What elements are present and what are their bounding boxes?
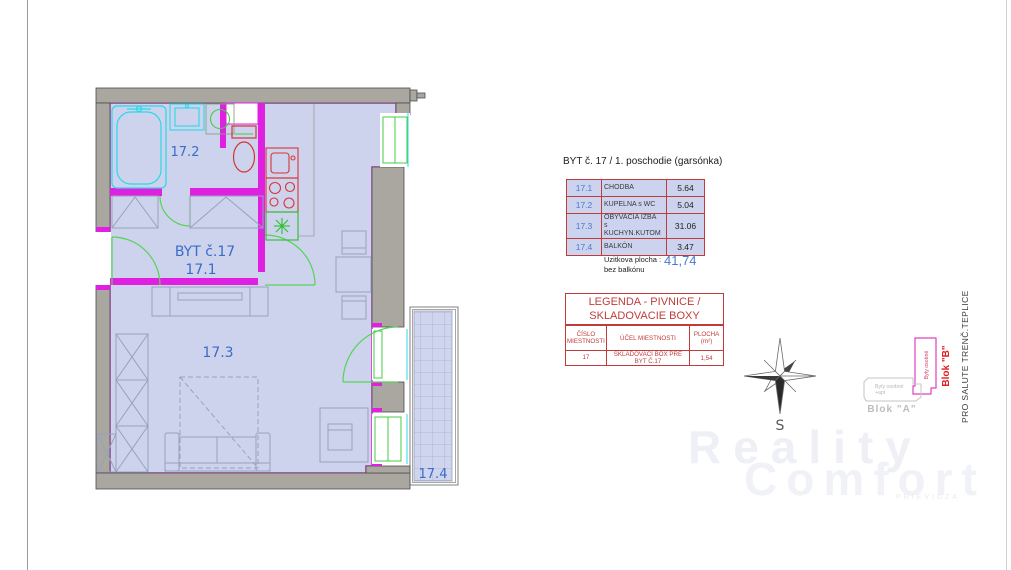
room-name: CHODBA [602, 180, 667, 197]
room-area: 5.04 [667, 197, 705, 214]
legend-header-number: ČÍSLO MIESTNOSTI [566, 326, 607, 351]
legend-title-line1: LEGENDA - PIVNICE / [566, 295, 723, 309]
usable-area-total: 41,74 [664, 253, 697, 268]
room-name-line2: s KUCHYN.KUTOM [604, 222, 664, 238]
blok-b-outline: Byty osobné Blok "B" [913, 338, 952, 394]
table-row: 17.1 CHODBA 5.64 [567, 180, 705, 197]
compass-rose: S [738, 330, 822, 434]
legend-header-purpose: ÚČEL MIESTNOSTI [606, 326, 689, 351]
blok-a-label: Blok "A" [867, 404, 916, 415]
legend-title-line2: SKLADOVACIE BOXY [566, 309, 723, 323]
room-number: 17.4 [567, 239, 602, 256]
sheet-fold-line [27, 0, 28, 570]
usable-area-label: Uzitkova plocha : bez balkónu [604, 255, 666, 275]
usable-area-label-line1: Uzitkova plocha : [604, 255, 666, 265]
blok-a-outline: Byty osobné +apt Blok "A" [864, 378, 921, 415]
legend-room-area: 1,54 [690, 351, 724, 366]
legend-header-row: ČÍSLO MIESTNOSTI ÚČEL MIESTNOSTI PLOCHA … [566, 326, 724, 351]
area-table: 17.1 CHODBA 5.64 17.2 KUPELNA s WC 5.04 … [566, 179, 705, 256]
watermark-line3: PRIEVIDZA [896, 494, 960, 501]
legend-header-number-line1: ČÍSLO [567, 331, 605, 338]
table-row: 17.3 OBYVACIA IZBA s KUCHYN.KUTOM 31.06 [567, 214, 705, 239]
area-table-title: BYT č. 17 / 1. poschodie (garsónka) [563, 156, 722, 167]
project-side-text: PRO SALUTE TRENČ.TEPLICE [960, 268, 974, 423]
apartment-label: BYT č.17 [175, 244, 235, 260]
floor-plan: 17.2 BYT č.17 17.1 17.3 17.4 [88, 80, 466, 498]
wc-niche [226, 103, 258, 124]
site-blocks: Byty osobné Blok "B" Byty osobné +apt Bl… [855, 328, 965, 420]
blok-b-label: Blok "B" [941, 345, 952, 386]
room-name: KUPELNA s WC [602, 197, 667, 214]
blok-b-desc: Byty osobné [924, 351, 930, 380]
legend-room-number: 17 [566, 351, 607, 366]
room-name: OBYVACIA IZBA s KUCHYN.KUTOM [602, 214, 667, 239]
legend-room-purpose: SKLADOVACÍ BOX PRE BYT Č.17 [606, 351, 689, 366]
room-label-17-1: 17.1 [185, 262, 216, 278]
legend-header-number-line2: MIESTNOSTI [567, 338, 605, 345]
room-name-line1: OBYVACIA IZBA [604, 214, 664, 222]
window-bottom [372, 414, 407, 464]
page: Reality Comfort PRIEVIDZA [0, 0, 1011, 570]
table-row: 17.2 KUPELNA s WC 5.04 [567, 197, 705, 214]
room-name: BALKÓN [602, 239, 667, 256]
legend-header-area: PLOCHA (m²) [690, 326, 724, 351]
room-label-17-4: 17.4 [419, 467, 448, 482]
room-number: 17.3 [567, 214, 602, 239]
balcony-door-opening [372, 329, 407, 380]
room-area: 31.06 [667, 214, 705, 239]
room-area: 5.64 [667, 180, 705, 197]
legend-title: LEGENDA - PIVNICE / SKLADOVACIE BOXY [565, 293, 724, 325]
compass-south-needle [775, 376, 784, 414]
room-number: 17.2 [567, 197, 602, 214]
sheet-edge-line [1006, 0, 1007, 570]
room-number: 17.1 [567, 180, 602, 197]
blok-a-desc2: +apt [875, 390, 886, 396]
usable-area-label-line2: bez balkónu [604, 265, 666, 275]
legend-table: LEGENDA - PIVNICE / SKLADOVACIE BOXY ČÍS… [565, 293, 724, 366]
entrance-opening [95, 227, 111, 290]
window-top [380, 113, 410, 167]
compass-star [744, 338, 816, 414]
legend-data-row: 17 SKLADOVACÍ BOX PRE BYT Č.17 1,54 [566, 351, 724, 366]
compass-south-label: S [776, 418, 785, 434]
apartment-floor [110, 103, 396, 473]
balcony [410, 307, 458, 485]
room-label-17-2: 17.2 [171, 145, 200, 160]
room-label-17-3: 17.3 [202, 345, 233, 361]
